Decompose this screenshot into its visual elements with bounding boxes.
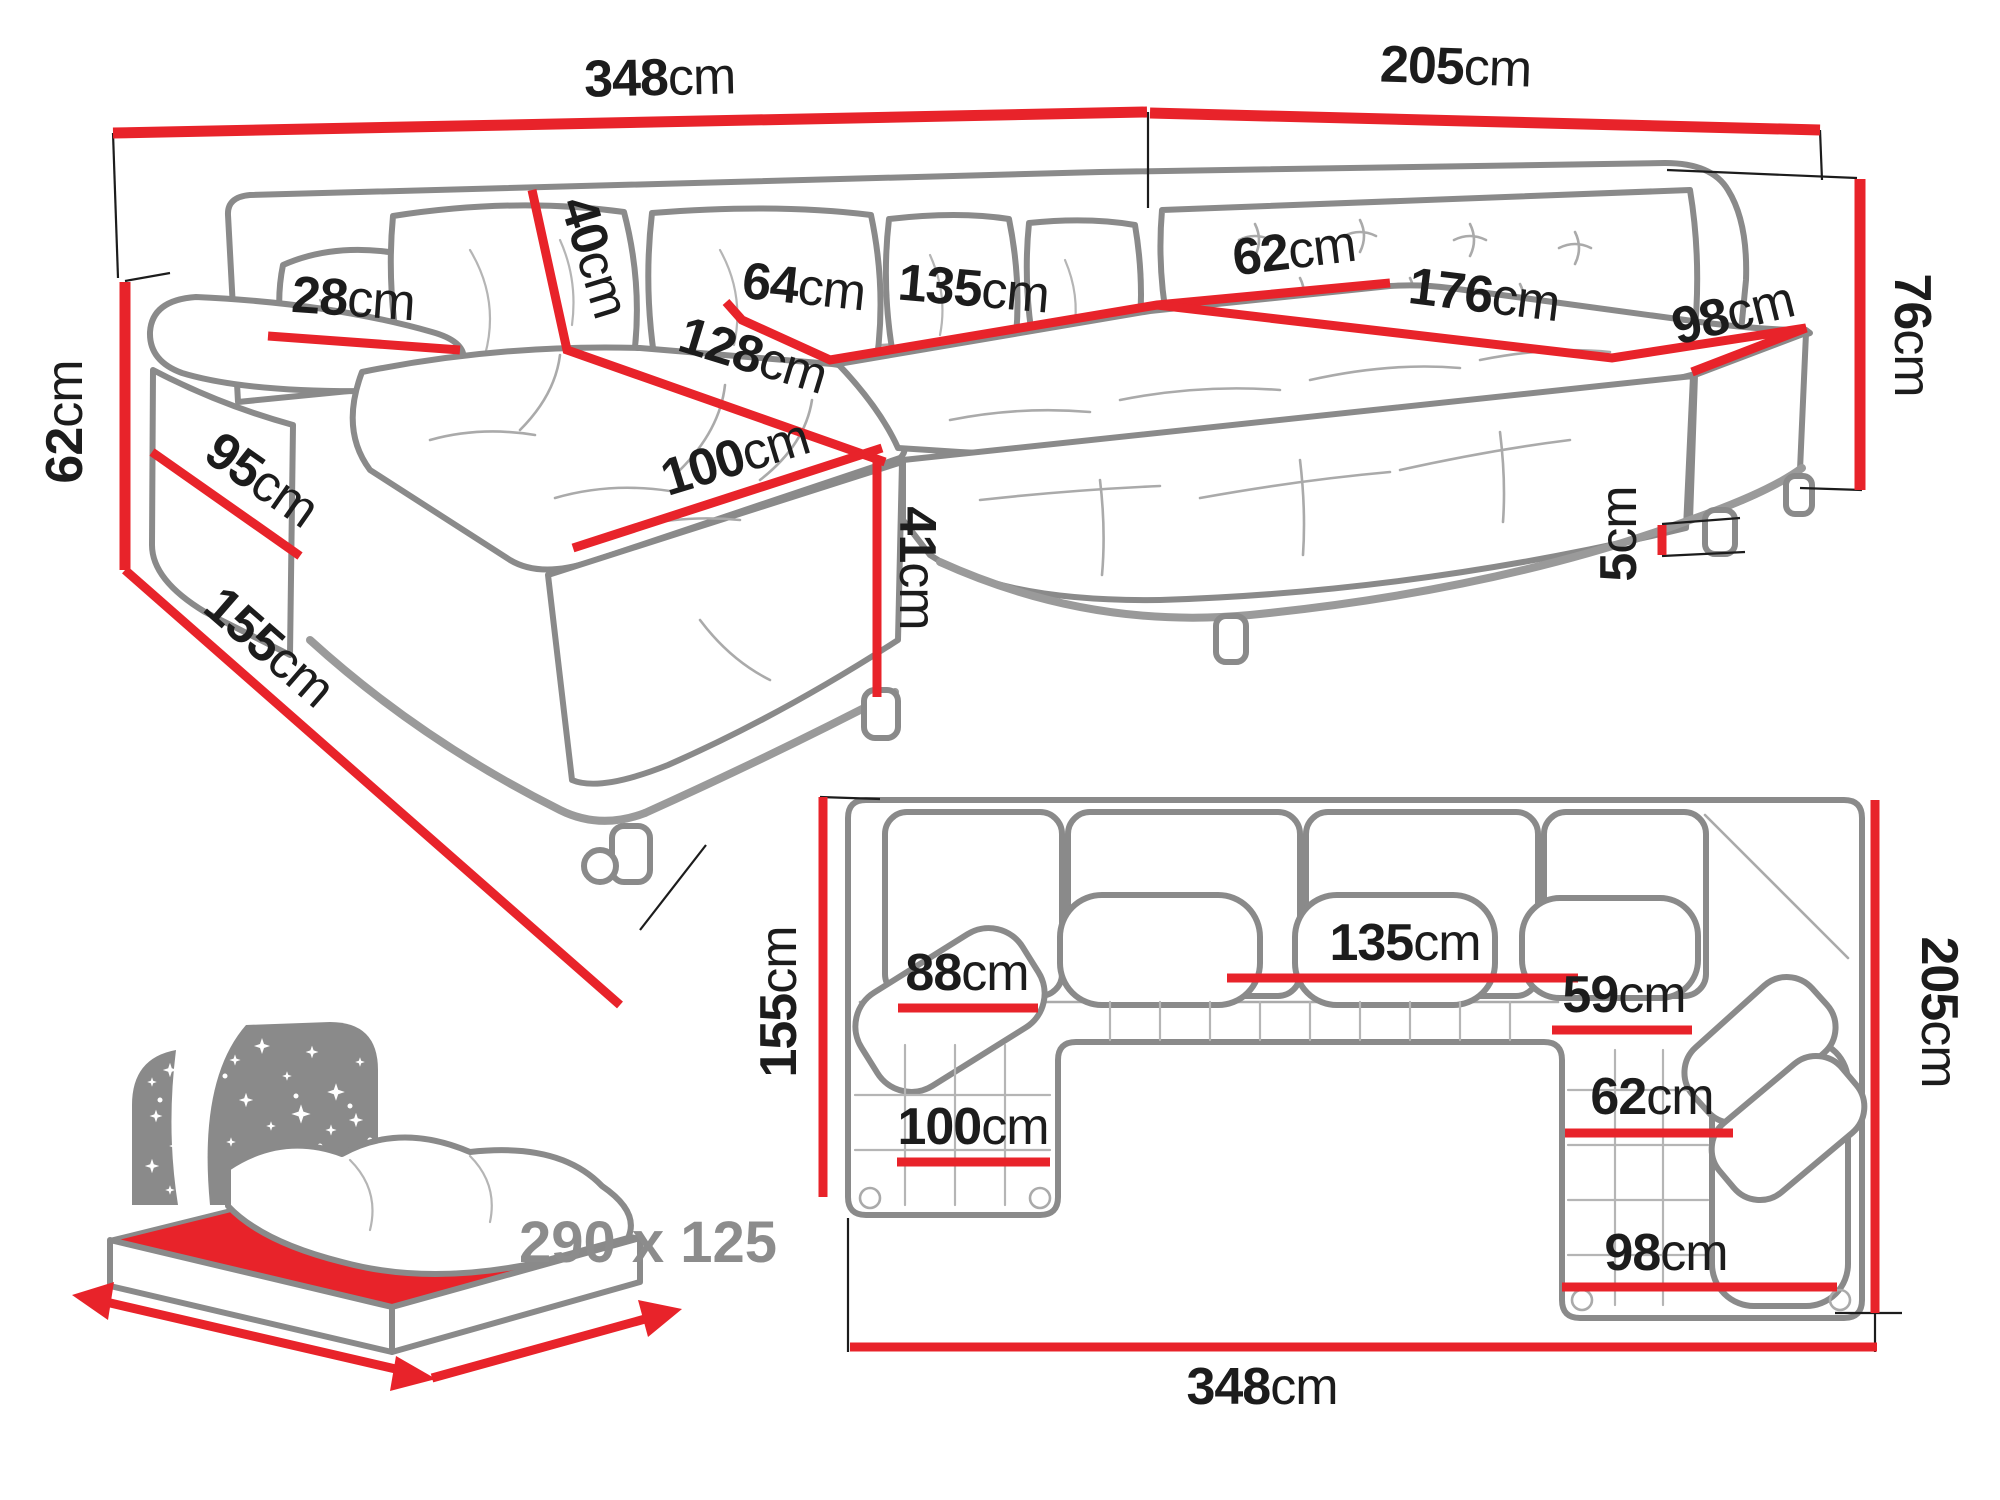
label-seat-height: 41cm xyxy=(888,506,946,629)
plan-label-wing-seat-width: 98cm xyxy=(1604,1224,1727,1282)
plan-label-chaise-depth: 155cm xyxy=(750,926,808,1077)
dimension-diagram-page: 348cm 205cm 76cm 62cm 95cm 155cm 28cm 40… xyxy=(0,0,2000,1500)
plan-label-chaise-seat-width: 88cm xyxy=(905,944,1028,1002)
dim-line-205 xyxy=(1150,113,1820,130)
dim-line-348 xyxy=(113,112,1147,133)
plan-label-right-seat-depth: 62cm xyxy=(1590,1068,1713,1126)
label-leg-height: 5cm xyxy=(1590,486,1648,581)
label-right-total-width: 205cm xyxy=(1379,35,1532,98)
dim-line-155 xyxy=(125,570,620,1005)
bed-dimensions-label: 290 x 125 xyxy=(519,1210,777,1275)
label-backrest-height: 76cm xyxy=(1883,273,1941,396)
sofa-bed-icon: 290 x 125 xyxy=(72,1022,777,1391)
sofa-dimension-diagram: 348cm 205cm 76cm 62cm 95cm 155cm 28cm 40… xyxy=(0,0,2000,1500)
plan-label-right-seat-width: 59cm xyxy=(1562,966,1685,1024)
label-total-width: 348cm xyxy=(584,47,736,108)
plan-label-total-width: 348cm xyxy=(1186,1358,1337,1416)
plan-label-chaise-width: 100cm xyxy=(897,1098,1048,1156)
plan-label-right-total-depth: 205cm xyxy=(1910,936,1968,1087)
label-armrest-top-width: 28cm xyxy=(290,266,417,332)
plan-label-middle-seat-width: 135cm xyxy=(1329,914,1480,972)
label-armrest-height: 62cm xyxy=(36,360,94,483)
